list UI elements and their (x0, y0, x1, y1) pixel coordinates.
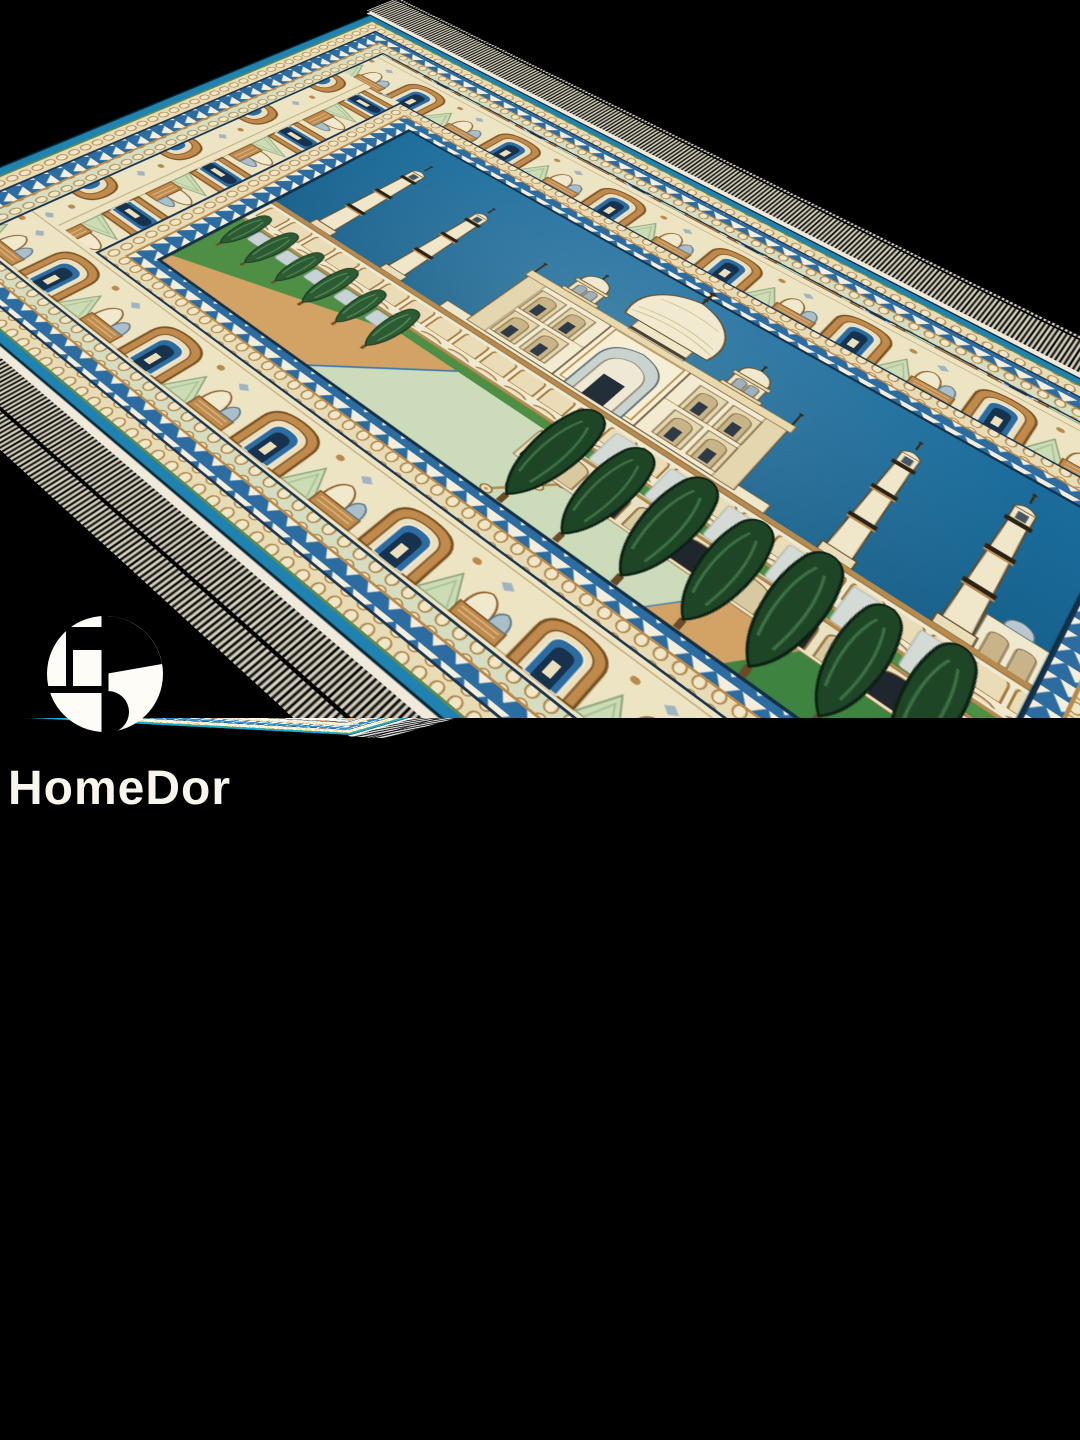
brand-wordmark: HomeDor (8, 764, 238, 814)
carpet-artwork (0, 0, 1080, 718)
homedor-logo-icon (39, 612, 179, 762)
photo-top (0, 0, 1080, 718)
photo-bottom (0, 718, 1080, 1440)
homedor-logo: HomeDor (8, 612, 238, 814)
product-collage: HomeDor (0, 0, 1080, 1440)
